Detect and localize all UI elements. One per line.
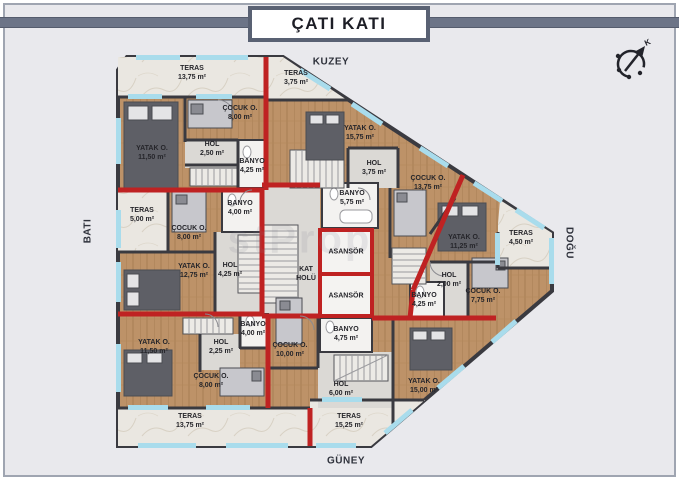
compass-north-letter: K bbox=[643, 37, 652, 48]
elevator-shafts bbox=[320, 230, 372, 316]
cardinal-south: GÜNEY bbox=[327, 456, 365, 467]
cardinal-east: DOĞU bbox=[564, 227, 575, 259]
floorplan-page: { "title": "ÇATI KATI", "cardinal": { "n… bbox=[0, 0, 679, 480]
cardinal-west: BATI bbox=[83, 219, 94, 244]
plan-title: ÇATI KATI bbox=[291, 14, 386, 34]
plan-title-box: ÇATI KATI bbox=[248, 6, 430, 42]
floorplan-canvas: K bbox=[0, 0, 679, 480]
compass-icon: K bbox=[616, 37, 652, 79]
cardinal-north: KUZEY bbox=[313, 57, 349, 68]
